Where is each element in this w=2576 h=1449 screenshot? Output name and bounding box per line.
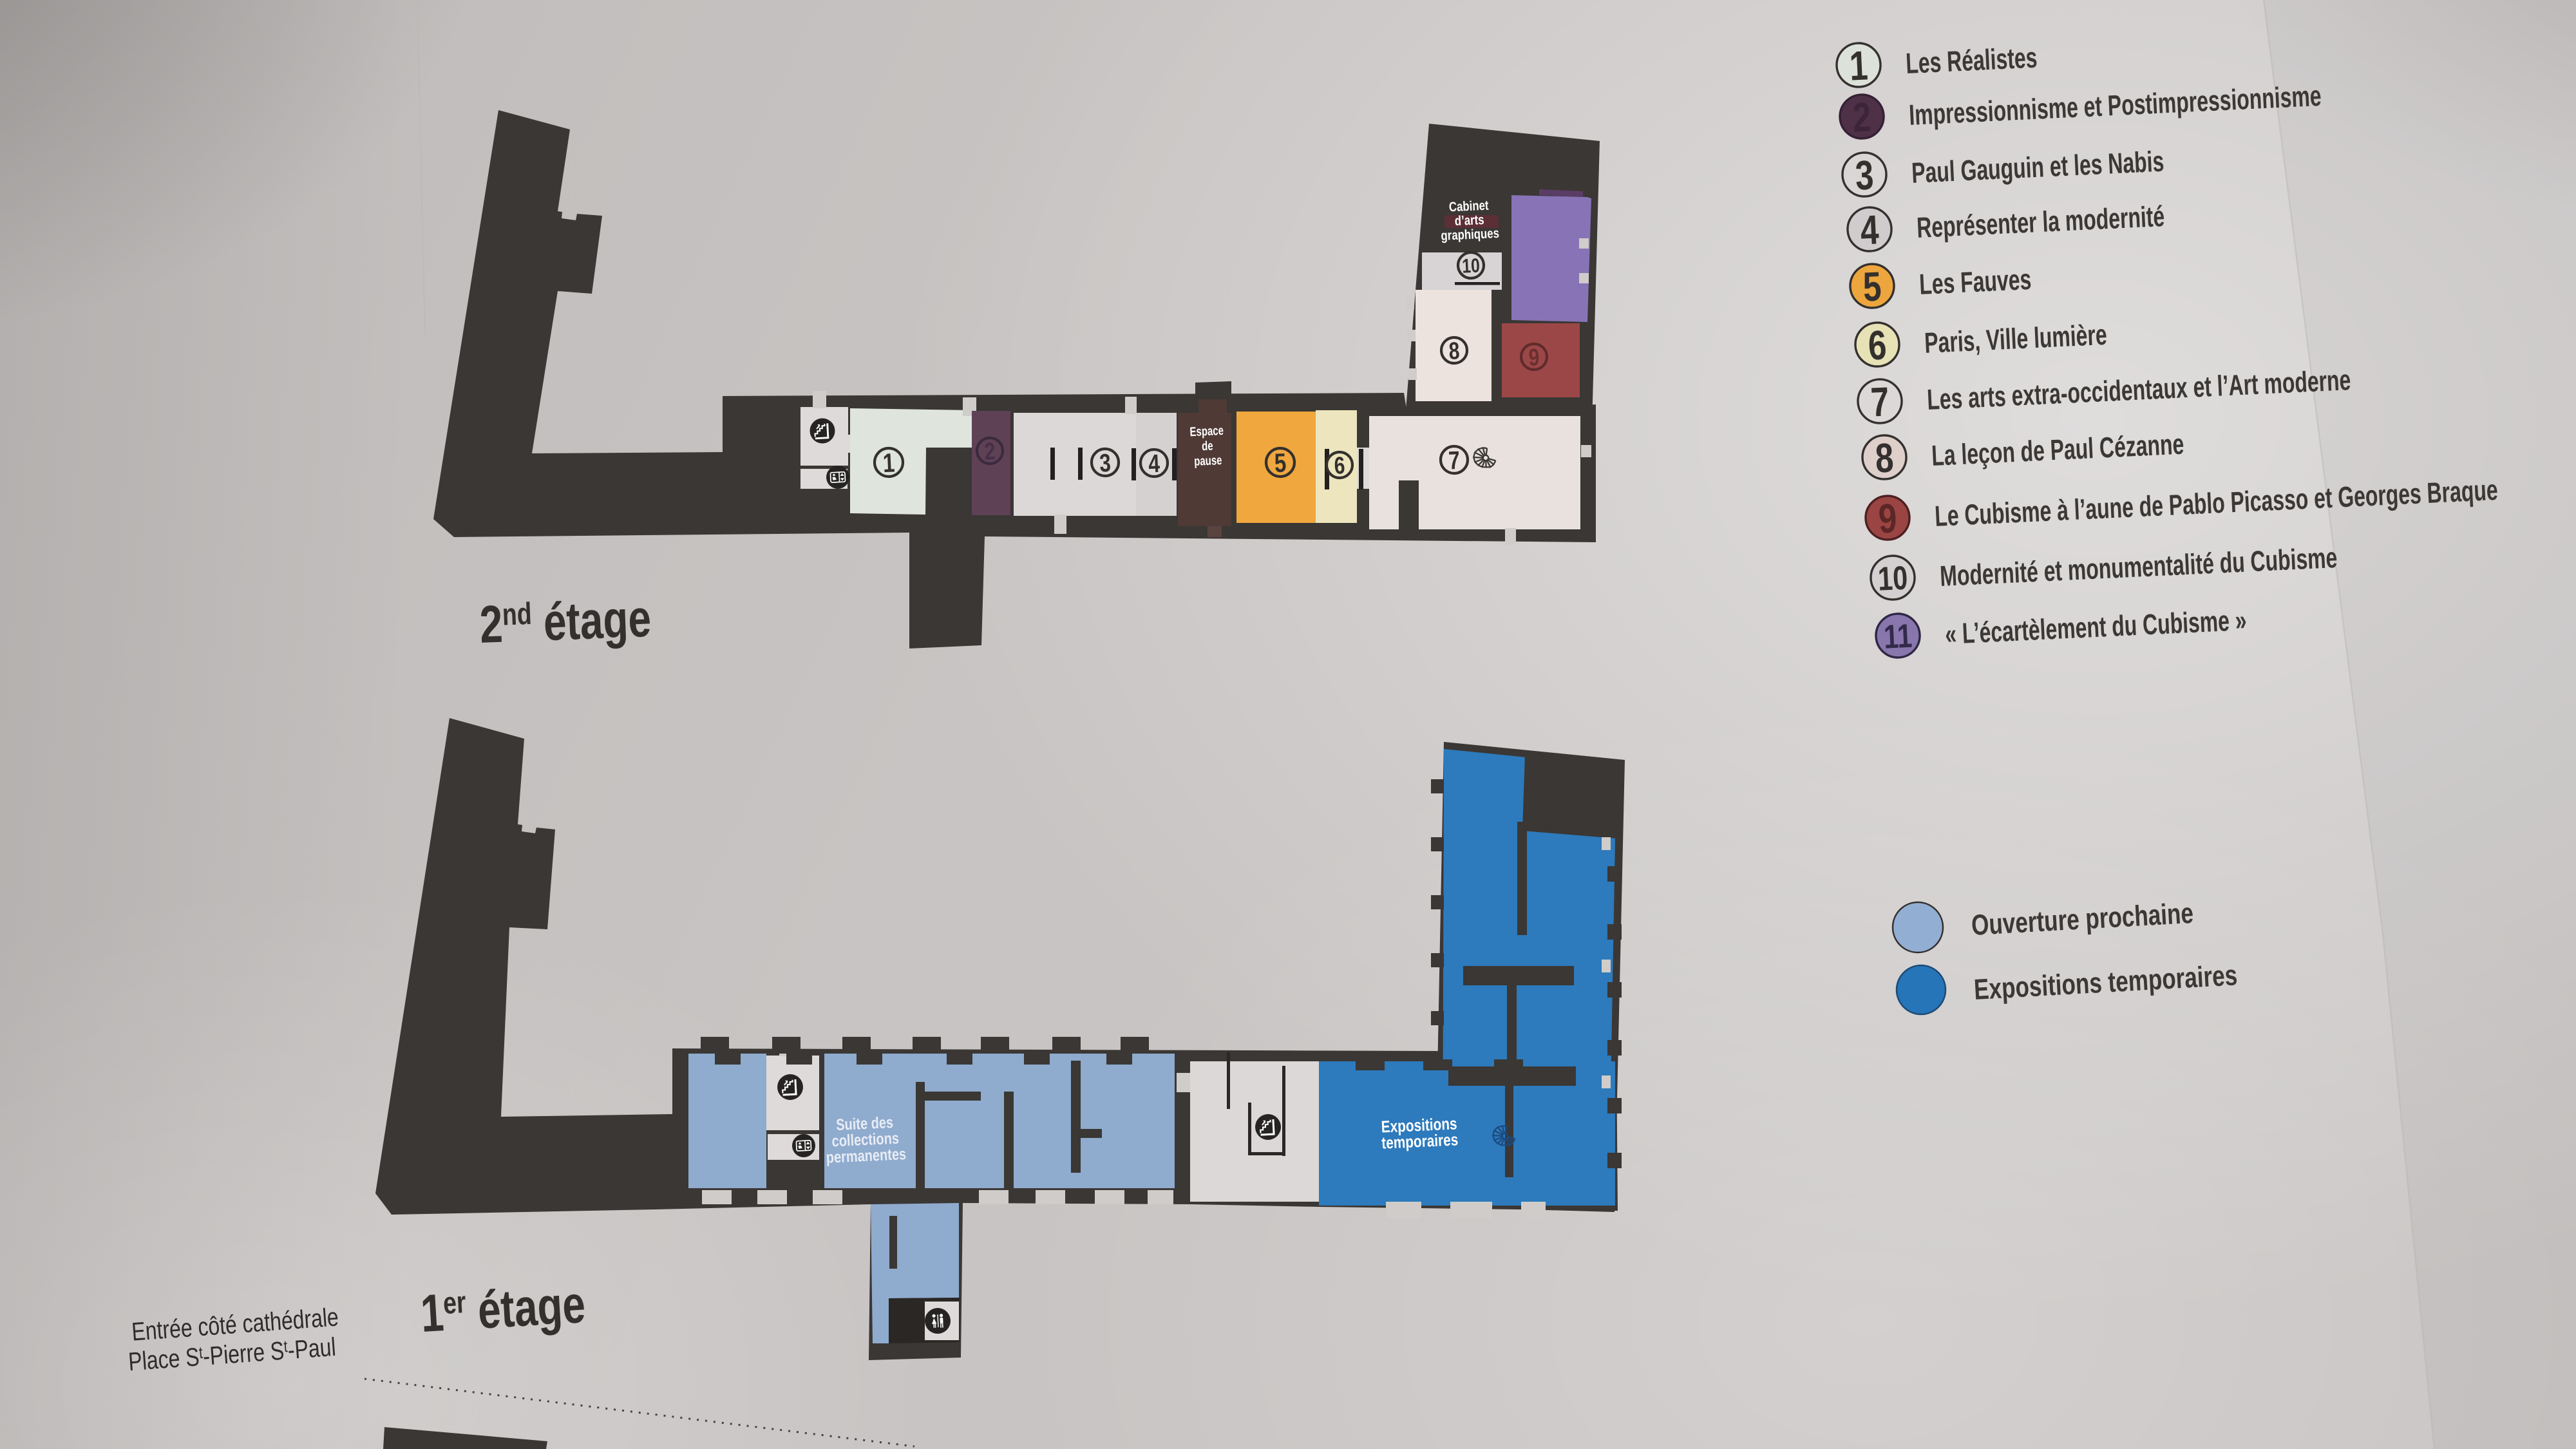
svg-text:Les Réalistes: Les Réalistes (1905, 42, 2038, 80)
svg-text:5: 5 (1862, 264, 1882, 310)
svg-text:2: 2 (1851, 95, 1872, 141)
svg-text:1: 1 (882, 448, 895, 478)
svg-text:10: 10 (1461, 254, 1480, 277)
svg-text:9: 9 (1877, 496, 1898, 542)
svg-text:4: 4 (1148, 449, 1160, 478)
svg-text:Entrée côté cathédralePlace St: Entrée côté cathédralePlace St-Pierre St… (125, 1302, 341, 1376)
svg-text:3: 3 (1099, 448, 1112, 477)
svg-text:« L’écartèlement du Cubisme »: « L’écartèlement du Cubisme » (1944, 605, 2247, 651)
svg-text:6: 6 (1334, 452, 1346, 480)
svg-text:3: 3 (1854, 153, 1875, 199)
svg-text:La leçon de Paul Cézanne: La leçon de Paul Cézanne (1931, 428, 2184, 472)
svg-text:9: 9 (1528, 344, 1540, 372)
svg-text:Impressionnisme et Postimpress: Impressionnisme et Postimpressionnisme (1908, 80, 2322, 132)
svg-text:7: 7 (1870, 379, 1890, 426)
svg-text:Expositions temporaires: Expositions temporaires (1973, 958, 2239, 1006)
svg-text:Paris, Ville lumière: Paris, Ville lumière (1924, 319, 2108, 359)
svg-text:5: 5 (1274, 448, 1287, 478)
svg-text:1er étage: 1er étage (419, 1274, 587, 1343)
svg-text:Représenter la modernité: Représenter la modernité (1916, 201, 2165, 245)
svg-text:Paul Gauguin et les Nabis: Paul Gauguin et les Nabis (1911, 146, 2164, 189)
svg-text:Ouverture prochaine: Ouverture prochaine (1971, 896, 2194, 942)
svg-text:8: 8 (1448, 337, 1461, 365)
svg-text:4: 4 (1859, 207, 1880, 254)
svg-text:7: 7 (1448, 446, 1461, 475)
svg-text:6: 6 (1867, 323, 1888, 369)
svg-text:8: 8 (1874, 435, 1895, 482)
svg-text:10: 10 (1877, 558, 1909, 598)
svg-text:2nd étage: 2nd étage (478, 588, 652, 654)
svg-text:Modernité et monumentalité du: Modernité et monumentalité du Cubisme (1939, 542, 2338, 593)
svg-text:Expositionstemporaires: Expositionstemporaires (1381, 1114, 1459, 1152)
svg-text:Les Fauves: Les Fauves (1918, 264, 2032, 301)
svg-text:11: 11 (1883, 616, 1913, 655)
svg-text:2: 2 (984, 438, 996, 466)
svg-text:1: 1 (1848, 43, 1869, 90)
svg-text:Les arts extra-occidentaux et: Les arts extra-occidentaux et l’Art mode… (1926, 365, 2351, 417)
